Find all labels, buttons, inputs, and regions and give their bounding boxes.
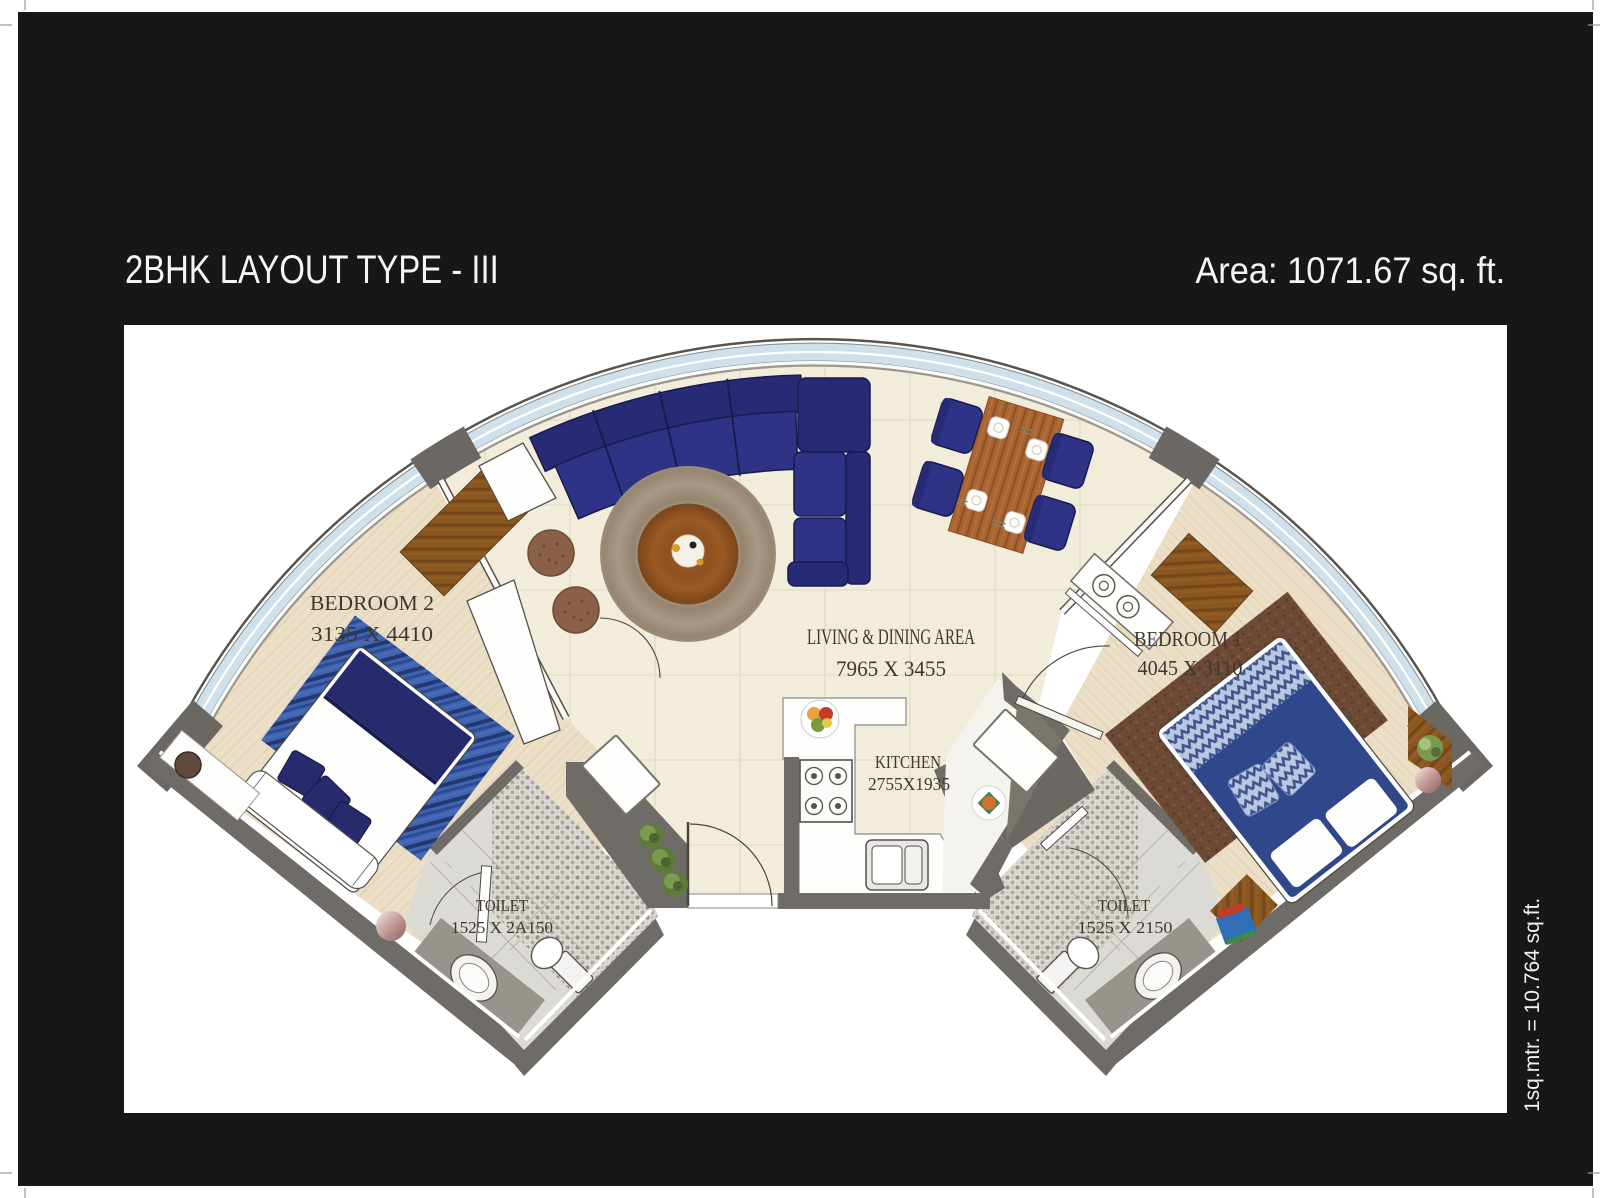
svg-text:TOILET: TOILET — [1098, 896, 1151, 915]
svg-text:TOILET: TOILET — [476, 896, 529, 915]
svg-text:1525 X 2A150: 1525 X 2A150 — [451, 918, 553, 937]
svg-text:KITCHEN: KITCHEN — [875, 752, 941, 772]
svg-text:3135 X 4410: 3135 X 4410 — [311, 622, 433, 646]
svg-text:BEDROOM 2: BEDROOM 2 — [310, 591, 434, 615]
svg-text:LIVING & DINING AREA: LIVING & DINING AREA — [807, 624, 975, 649]
svg-text:7965 X 3455: 7965 X 3455 — [836, 656, 946, 681]
svg-text:1525 X 2150: 1525 X 2150 — [1078, 918, 1173, 937]
svg-text:4045 X 3110: 4045 X 3110 — [1138, 656, 1243, 680]
svg-text:2755X1935: 2755X1935 — [868, 774, 950, 794]
svg-text:BEDROOM 1: BEDROOM 1 — [1134, 627, 1242, 651]
